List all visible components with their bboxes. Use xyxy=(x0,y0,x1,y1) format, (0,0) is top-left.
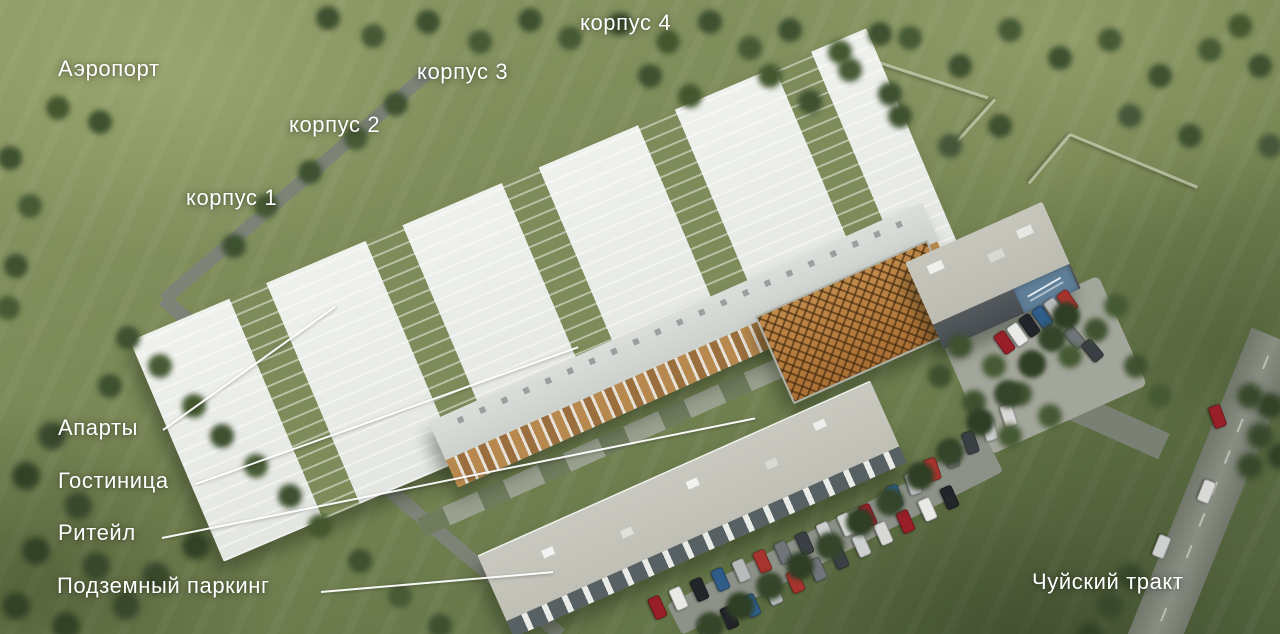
aerial-masterplan-render: Аэропорт корпус 4 корпус 3 корпус 2 корп… xyxy=(0,0,1280,634)
label-retail: Ритейл xyxy=(58,521,136,545)
label-korpus-4: корпус 4 xyxy=(580,11,671,35)
label-korpus-1: корпус 1 xyxy=(186,186,277,210)
rooftop-units xyxy=(926,260,944,275)
label-hotel: Гостиница xyxy=(58,469,169,493)
rooftop-units xyxy=(541,546,555,558)
label-chuysky-highway: Чуйский тракт xyxy=(1032,570,1184,594)
label-aparts: Апарты xyxy=(58,416,138,440)
label-airport: Аэропорт xyxy=(58,57,160,81)
label-korpus-3: корпус 3 xyxy=(417,60,508,84)
label-korpus-2: корпус 2 xyxy=(289,113,380,137)
label-underground-parking: Подземный паркинг xyxy=(57,574,270,598)
